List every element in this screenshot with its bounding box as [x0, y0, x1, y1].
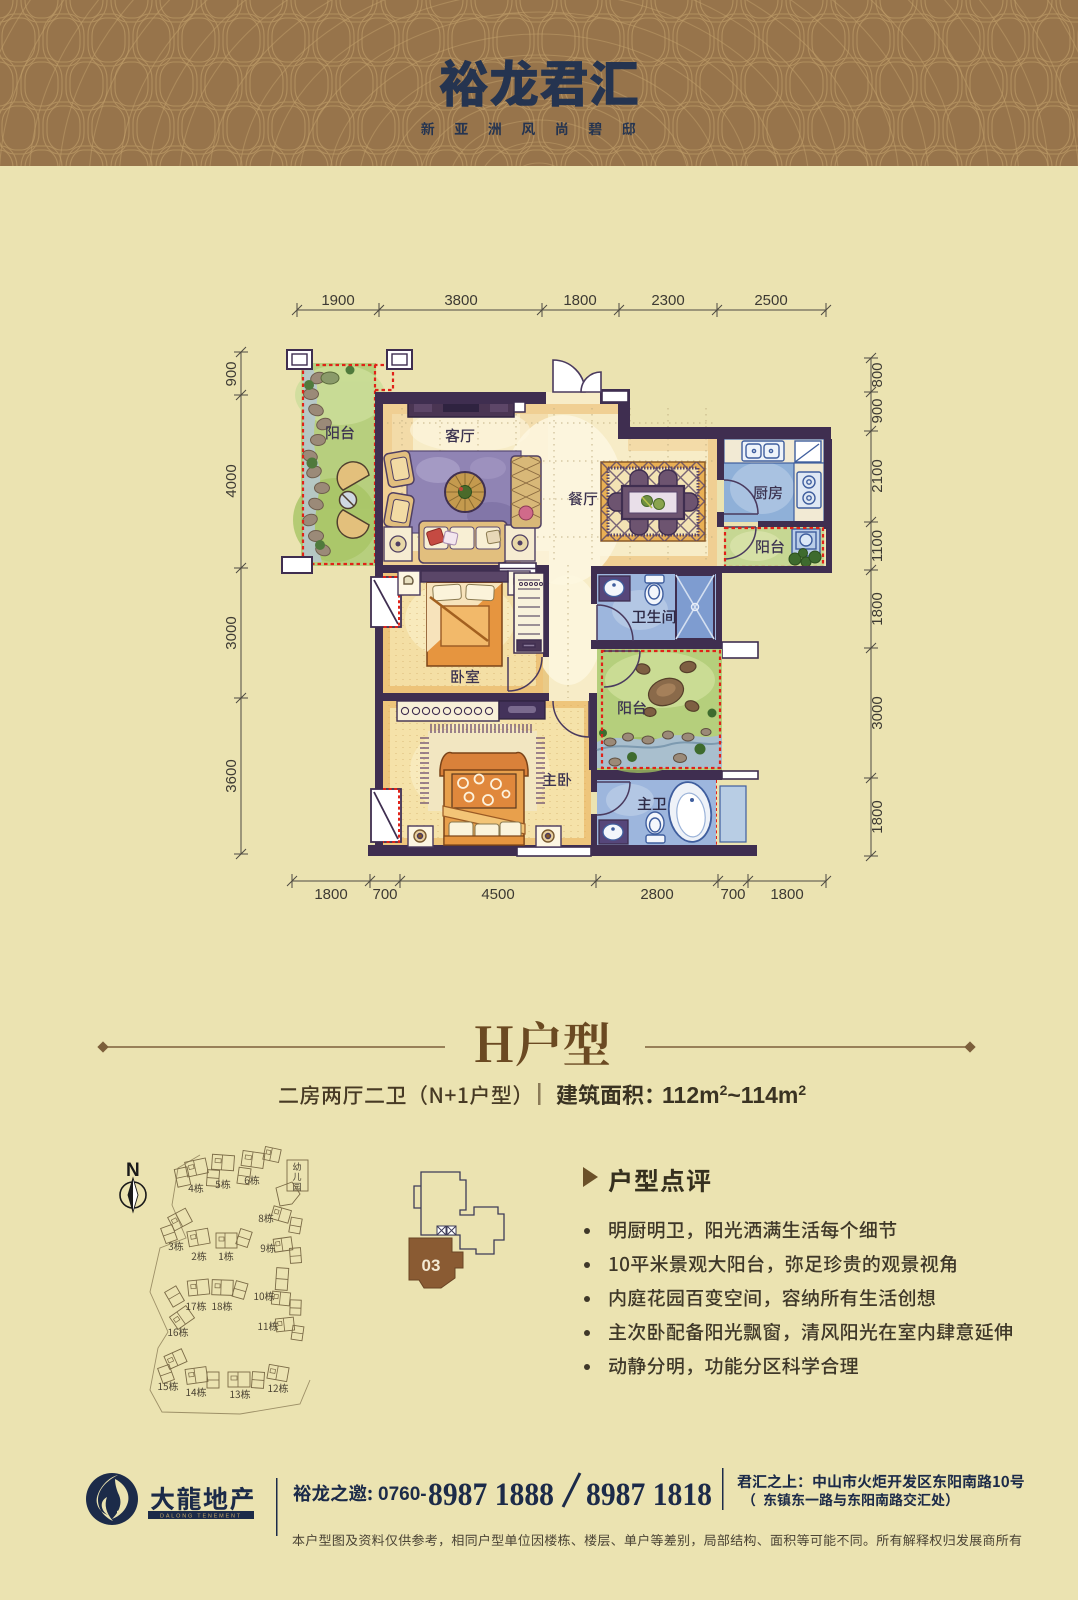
- svg-text:1800: 1800: [869, 592, 886, 625]
- svg-text:900: 900: [869, 398, 886, 423]
- svg-text:03: 03: [422, 1256, 441, 1275]
- svg-text:700: 700: [372, 886, 397, 903]
- svg-text:2800: 2800: [640, 886, 673, 903]
- svg-text:8987 1818: 8987 1818: [586, 1477, 712, 1513]
- svg-text:0760-: 0760-: [378, 1484, 427, 1505]
- svg-text:2300: 2300: [651, 292, 684, 309]
- svg-text:2100: 2100: [869, 459, 886, 492]
- svg-text:800: 800: [869, 362, 886, 387]
- svg-text:1900: 1900: [321, 292, 354, 309]
- svg-text:3000: 3000: [869, 696, 886, 729]
- svg-text:1100: 1100: [869, 530, 886, 562]
- svg-text:700: 700: [720, 886, 745, 903]
- svg-text:112m2~114m2: 112m2~114m2: [662, 1082, 806, 1108]
- svg-text:DALONG TENEMENT: DALONG TENEMENT: [160, 1514, 242, 1520]
- svg-text:4500: 4500: [481, 886, 514, 903]
- svg-text:3600: 3600: [223, 759, 240, 792]
- svg-text:1800: 1800: [869, 800, 886, 833]
- svg-text:4000: 4000: [223, 464, 240, 497]
- svg-text:8987 1888: 8987 1888: [428, 1477, 554, 1513]
- svg-text:2500: 2500: [754, 292, 787, 309]
- svg-text:1800: 1800: [314, 886, 347, 903]
- svg-text:1800: 1800: [770, 886, 803, 903]
- svg-text:1800: 1800: [563, 292, 596, 309]
- svg-text:3000: 3000: [223, 616, 240, 649]
- svg-text:900: 900: [223, 361, 240, 386]
- svg-text:3800: 3800: [444, 292, 477, 309]
